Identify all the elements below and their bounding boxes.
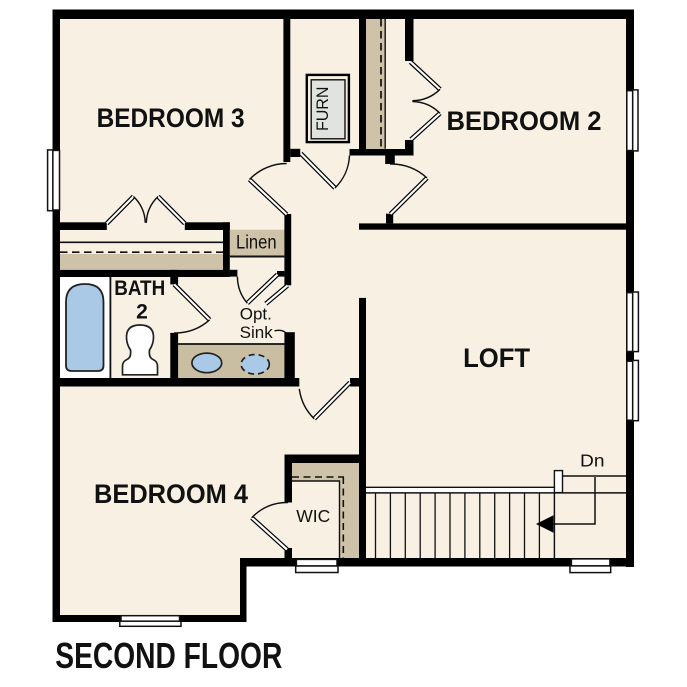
svg-text:Linen: Linen bbox=[236, 232, 277, 253]
svg-text:Opt.: Opt. bbox=[240, 305, 272, 324]
svg-text:BATH: BATH bbox=[114, 277, 165, 300]
svg-text:FURN: FURN bbox=[313, 87, 332, 132]
svg-text:BEDROOM 3: BEDROOM 3 bbox=[97, 103, 245, 133]
svg-text:SECOND FLOOR: SECOND FLOOR bbox=[55, 635, 282, 676]
svg-text:2: 2 bbox=[136, 301, 148, 324]
svg-text:BEDROOM 4: BEDROOM 4 bbox=[94, 479, 248, 509]
svg-text:WIC: WIC bbox=[296, 506, 330, 526]
svg-text:Dn: Dn bbox=[580, 451, 605, 471]
svg-text:LOFT: LOFT bbox=[463, 343, 530, 373]
svg-text:Sink: Sink bbox=[240, 323, 274, 342]
svg-text:BEDROOM 2: BEDROOM 2 bbox=[447, 106, 602, 136]
